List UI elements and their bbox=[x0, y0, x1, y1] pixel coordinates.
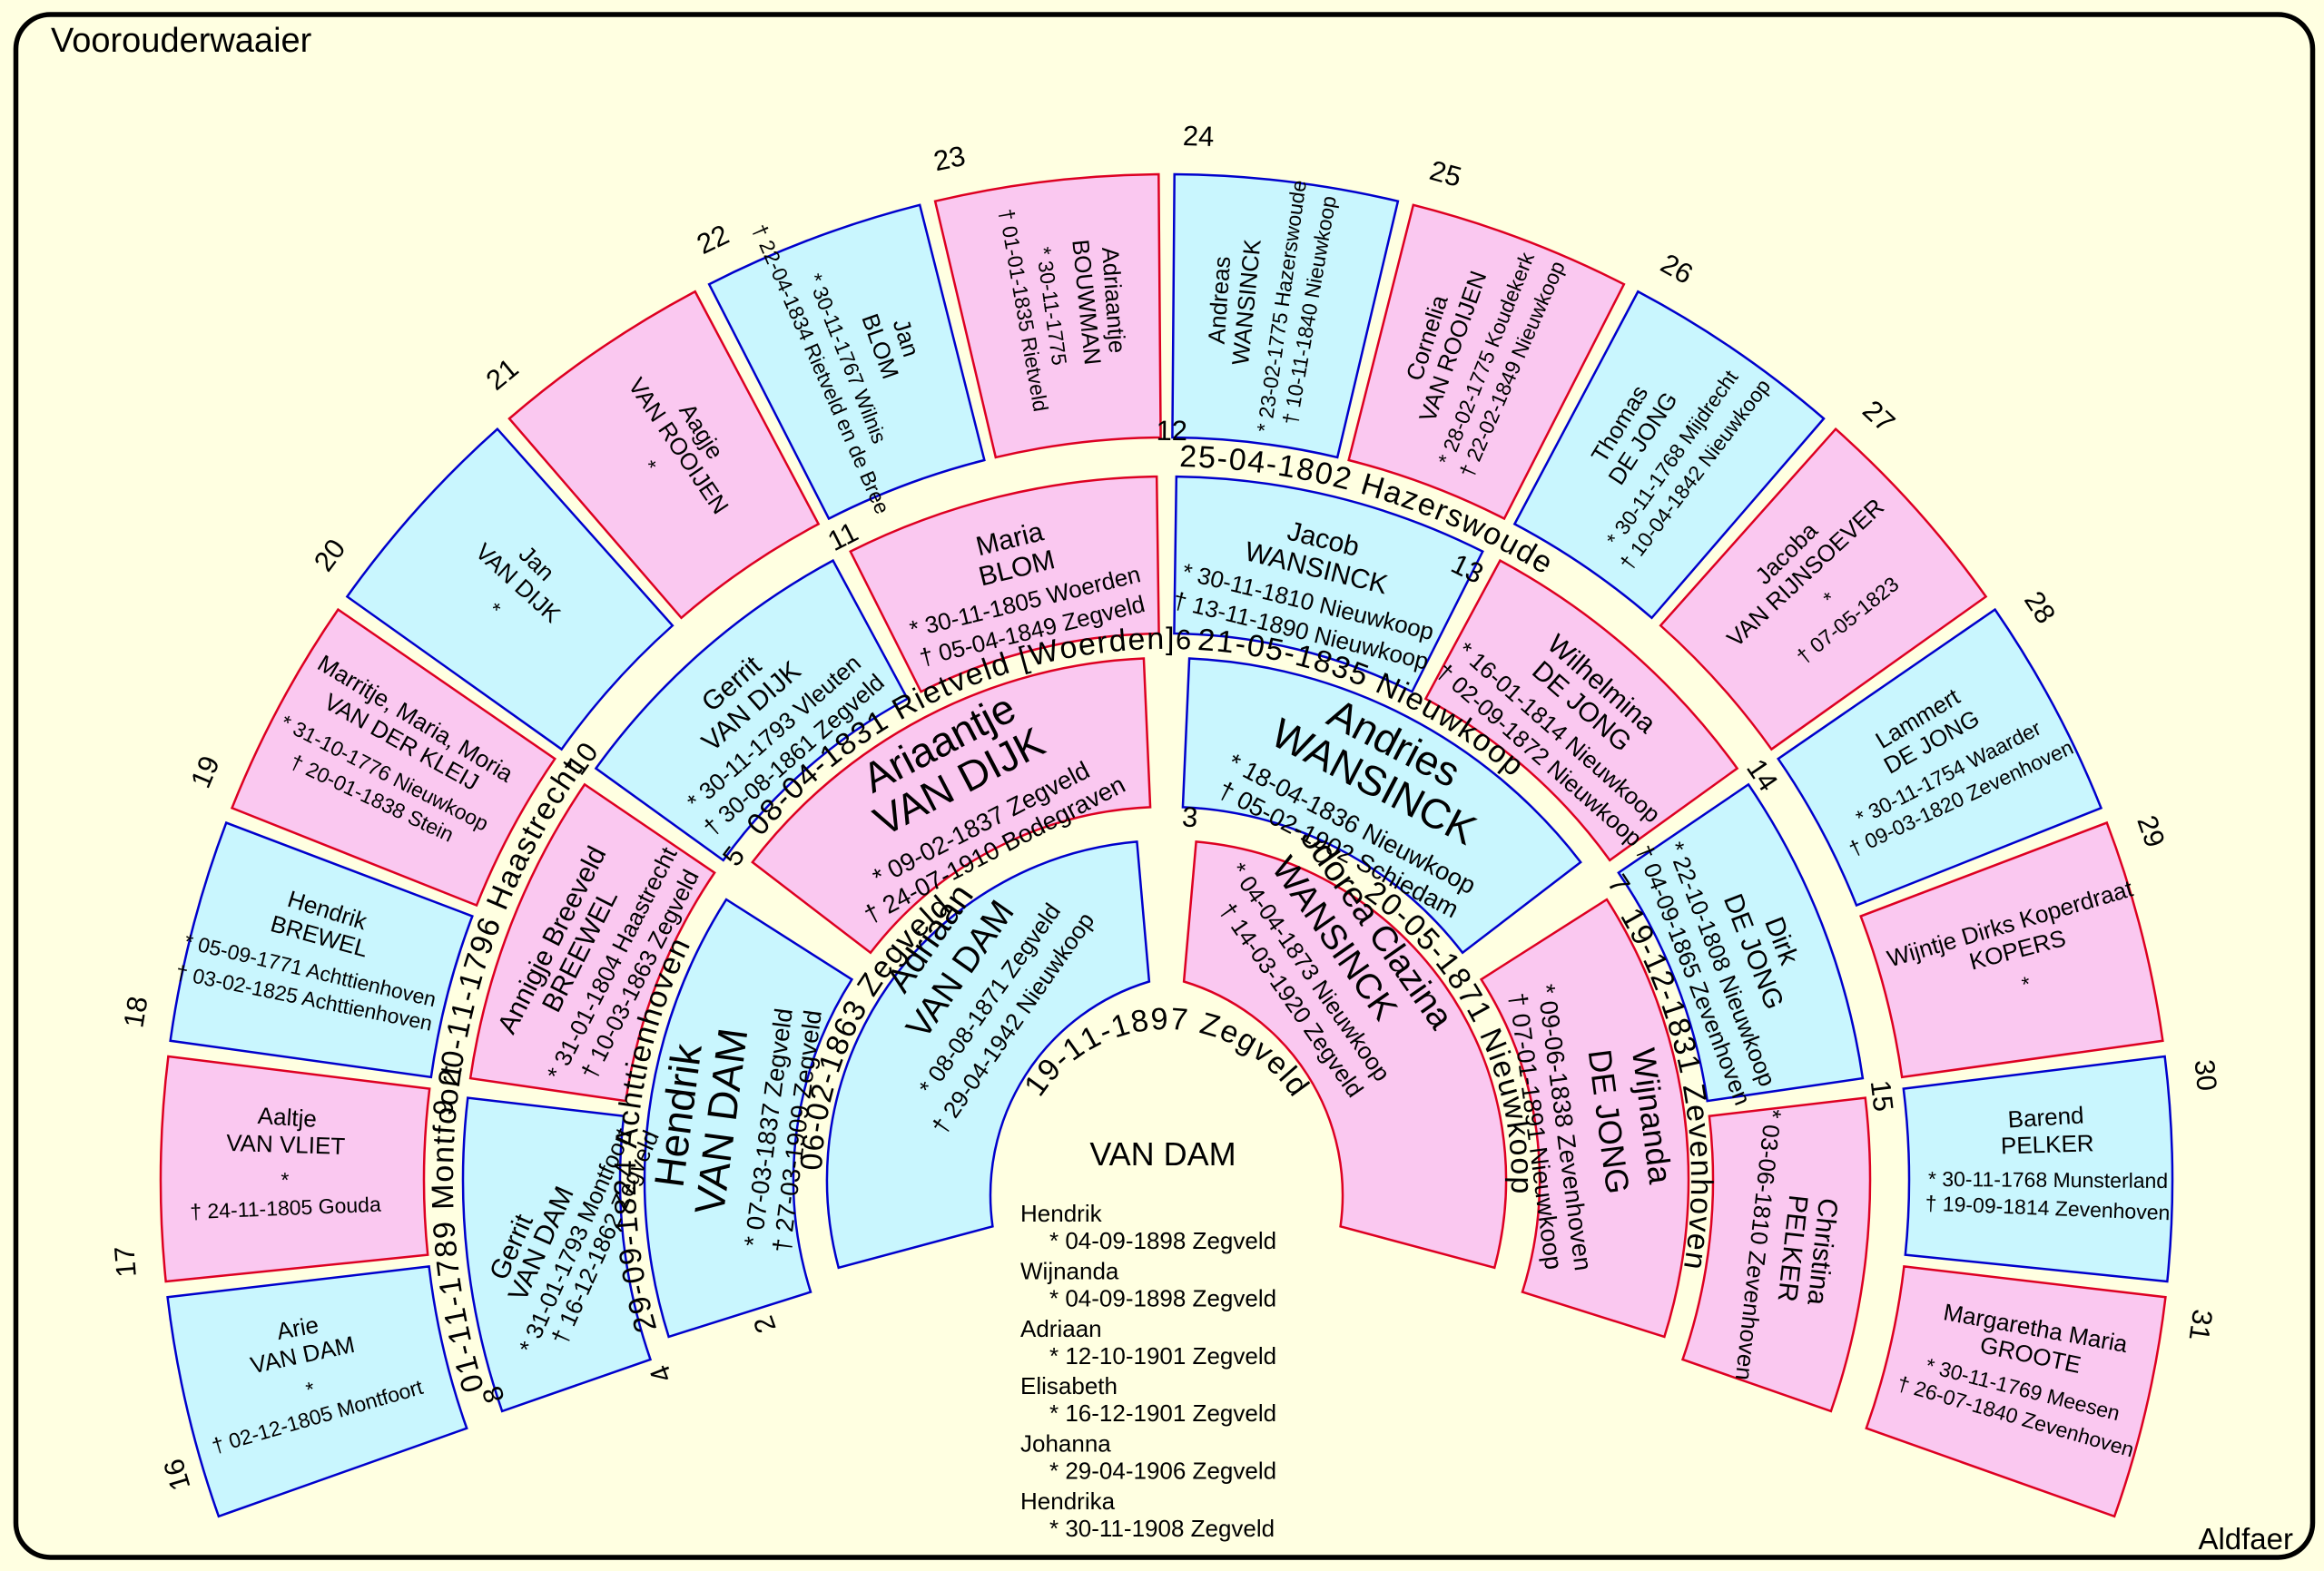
svg-text:o: o bbox=[1683, 1196, 1718, 1215]
svg-text:VAN VLIET: VAN VLIET bbox=[226, 1129, 346, 1160]
svg-text:2: 2 bbox=[608, 1179, 643, 1196]
svg-text:M: M bbox=[426, 1183, 461, 1210]
svg-text:n: n bbox=[1684, 1159, 1718, 1177]
svg-text:o: o bbox=[426, 1165, 460, 1183]
svg-text:8: 8 bbox=[608, 1197, 644, 1216]
svg-text:v: v bbox=[1681, 1215, 1717, 1233]
svg-text:Aldfaer: Aldfaer bbox=[2198, 1522, 2293, 1556]
svg-text:Wijnanda: Wijnanda bbox=[1020, 1257, 1119, 1284]
svg-text:3: 3 bbox=[1181, 800, 1198, 833]
svg-text:12: 12 bbox=[1156, 415, 1187, 447]
svg-text:4: 4 bbox=[608, 1160, 643, 1178]
svg-text:Hendrika: Hendrika bbox=[1020, 1488, 1116, 1515]
svg-text:PELKER: PELKER bbox=[2001, 1129, 2094, 1159]
svg-text:]: ] bbox=[1166, 622, 1175, 656]
svg-text:e: e bbox=[1683, 1140, 1718, 1159]
svg-text:p: p bbox=[1504, 1176, 1539, 1193]
svg-text:o: o bbox=[1502, 1137, 1539, 1157]
svg-text:24: 24 bbox=[1182, 120, 1215, 152]
svg-text:30: 30 bbox=[2189, 1058, 2223, 1093]
svg-text:9: 9 bbox=[1150, 1002, 1169, 1037]
svg-text:2: 2 bbox=[1196, 623, 1216, 658]
svg-text:6: 6 bbox=[795, 1133, 832, 1154]
svg-text:VAN DAM: VAN DAM bbox=[1089, 1135, 1236, 1173]
svg-text:0: 0 bbox=[1227, 442, 1248, 478]
svg-text:Barend: Barend bbox=[2007, 1101, 2085, 1133]
svg-text:1: 1 bbox=[609, 1215, 645, 1235]
svg-text:Aaltje: Aaltje bbox=[257, 1102, 318, 1133]
svg-text:9: 9 bbox=[427, 1221, 462, 1241]
svg-text:23: 23 bbox=[931, 140, 968, 177]
svg-text:* 12-10-1901 Zegveld: * 12-10-1901 Zegveld bbox=[1049, 1342, 1276, 1370]
svg-text:Voorouderwaaier: Voorouderwaaier bbox=[51, 22, 312, 60]
svg-text:0: 0 bbox=[794, 1153, 830, 1172]
svg-text:* 04-09-1898 Zegveld: * 04-09-1898 Zegveld bbox=[1049, 1284, 1276, 1311]
svg-text:Johanna: Johanna bbox=[1020, 1430, 1111, 1458]
svg-text:n: n bbox=[426, 1145, 461, 1164]
svg-text:* 16-12-1901 Zegveld: * 16-12-1901 Zegveld bbox=[1049, 1399, 1276, 1427]
svg-text:Adriaan: Adriaan bbox=[1020, 1315, 1102, 1342]
svg-text:e: e bbox=[1127, 622, 1146, 657]
svg-text:* 30-11-1908 Zegveld: * 30-11-1908 Zegveld bbox=[1049, 1515, 1275, 1542]
svg-text:31: 31 bbox=[2183, 1308, 2219, 1343]
svg-text:* 04-09-1898 Zegveld: * 04-09-1898 Zegveld bbox=[1049, 1227, 1276, 1254]
svg-text:17: 17 bbox=[108, 1245, 143, 1279]
svg-text:n: n bbox=[1147, 622, 1165, 656]
svg-text:A: A bbox=[609, 1126, 645, 1150]
svg-text:o: o bbox=[1503, 1157, 1539, 1175]
svg-text:15: 15 bbox=[1865, 1078, 1900, 1113]
svg-text:9: 9 bbox=[427, 1098, 460, 1117]
svg-text:*: * bbox=[281, 1168, 289, 1192]
svg-text:v: v bbox=[1681, 1122, 1717, 1140]
svg-text:Hendrik: Hendrik bbox=[1020, 1200, 1103, 1227]
svg-text:18: 18 bbox=[117, 994, 153, 1030]
svg-text:* 29-04-1906 Zegveld: * 29-04-1906 Zegveld bbox=[1049, 1458, 1276, 1485]
svg-text:Elisabeth: Elisabeth bbox=[1020, 1372, 1118, 1399]
svg-text:d: d bbox=[1108, 623, 1128, 660]
svg-text:7: 7 bbox=[1169, 1002, 1189, 1037]
svg-text:8: 8 bbox=[428, 1239, 465, 1259]
svg-text:* 30-11-1768 Munsterland: * 30-11-1768 Munsterland bbox=[1928, 1167, 2168, 1193]
svg-text:6: 6 bbox=[1176, 623, 1192, 656]
svg-text:5: 5 bbox=[1197, 440, 1216, 476]
svg-text:h: h bbox=[1684, 1178, 1718, 1195]
